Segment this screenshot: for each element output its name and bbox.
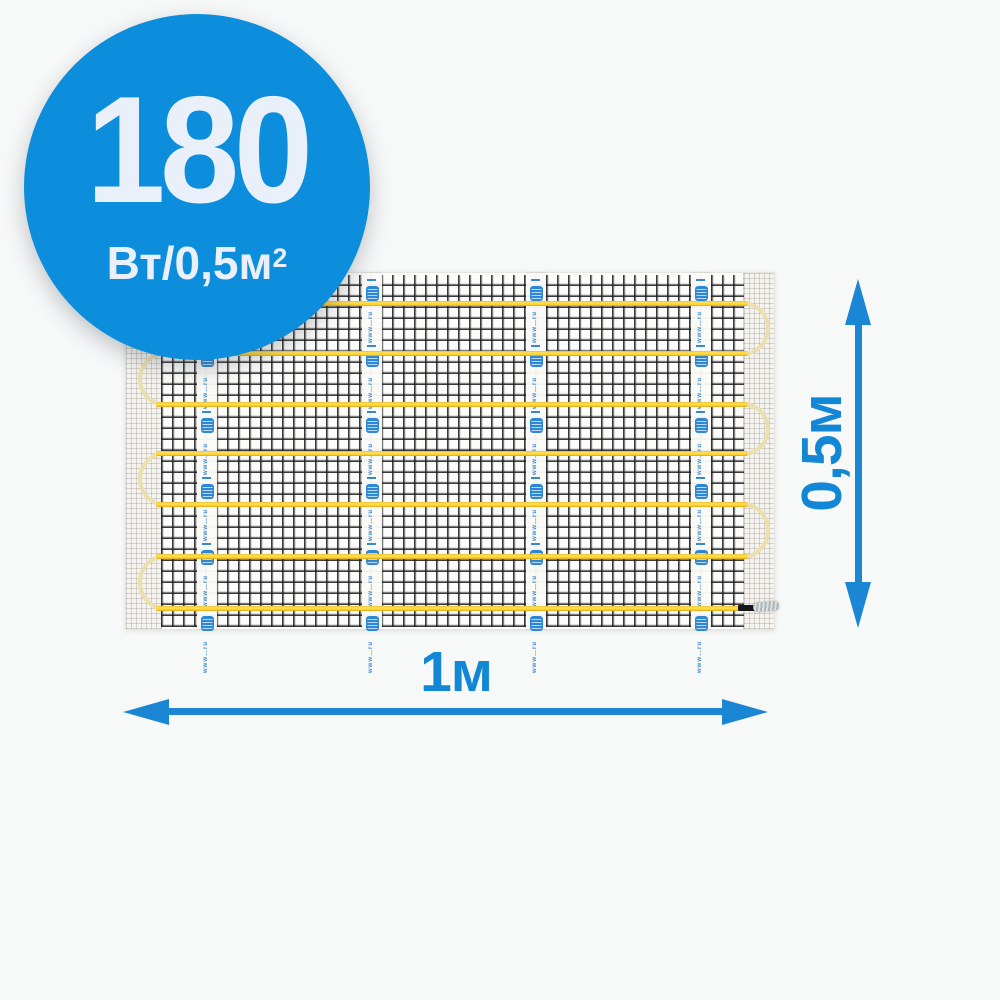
- tape-dash-mark: [531, 279, 540, 281]
- tape-stamp-text: www…ru: [368, 437, 374, 475]
- tape-dash-mark: [202, 543, 211, 545]
- arrow-right-icon: [722, 699, 768, 725]
- width-arrow-shaft: [162, 708, 732, 715]
- tape-dash-mark: [531, 543, 540, 545]
- heating-cable-run: [156, 502, 748, 507]
- arrow-down-icon: [845, 582, 871, 628]
- tape-brand-logo-icon: [201, 484, 214, 499]
- tape-stamp-text: www…ru: [697, 437, 703, 475]
- tape-dash-mark: [367, 543, 376, 545]
- tape-stamp-text: www…ru: [203, 569, 209, 607]
- tape-stamp-text: www…ru: [368, 635, 374, 673]
- tape-stamp-text: www…ru: [368, 569, 374, 607]
- tape-stamp-text: www…ru: [532, 569, 538, 607]
- tape-brand-logo-icon: [695, 616, 708, 631]
- tape-dash-mark: [367, 411, 376, 413]
- tape-stamp-text: www…ru: [203, 503, 209, 541]
- tape-brand-logo-icon: [695, 484, 708, 499]
- tape-stamp-text: www…ru: [368, 503, 374, 541]
- tape-brand-logo-icon: [366, 616, 379, 631]
- tape-stamp-text: www…ru: [203, 635, 209, 673]
- tape-brand-logo-icon: [366, 484, 379, 499]
- tape-brand-logo-icon: [530, 418, 543, 433]
- power-unit-superscript: 2: [273, 243, 288, 273]
- tape-dash-mark: [696, 477, 705, 479]
- tape-dash-mark: [531, 345, 540, 347]
- tape-dash-mark: [202, 477, 211, 479]
- tape-stamp-text: www…ru: [697, 305, 703, 343]
- tape-stamp-text: www…ru: [532, 635, 538, 673]
- tape-dash-mark: [696, 345, 705, 347]
- tape-brand-logo-icon: [366, 286, 379, 301]
- product-image-stage: www…ruwww…ruwww…ruwww…ruwww…ruwww…ruwww……: [0, 0, 1000, 1000]
- tape-brand-logo-icon: [530, 286, 543, 301]
- cable-end-sleeve: [753, 601, 780, 612]
- heating-cable-run: [156, 606, 740, 611]
- heating-cable-run: [156, 554, 748, 559]
- tape-stamp-text: www…ru: [697, 503, 703, 541]
- power-unit: Вт/0,5м2: [107, 236, 288, 290]
- tape-brand-logo-icon: [201, 616, 214, 631]
- tape-dash-mark: [367, 279, 376, 281]
- tape-dash-mark: [531, 477, 540, 479]
- heating-cable-run: [156, 402, 748, 407]
- tape-stamp-text: www…ru: [532, 437, 538, 475]
- height-arrow-shaft: [855, 318, 862, 590]
- tape-dash-mark: [367, 345, 376, 347]
- heating-cable-run: [156, 451, 748, 456]
- tape-brand-logo-icon: [530, 484, 543, 499]
- power-badge: 180 Вт/0,5м2: [24, 14, 370, 360]
- tape-dash-mark: [696, 411, 705, 413]
- height-dimension-label: 0,5м: [792, 373, 852, 533]
- tape-dash-mark: [202, 411, 211, 413]
- tape-brand-logo-icon: [695, 418, 708, 433]
- tape-dash-mark: [367, 477, 376, 479]
- tape-stamp-text: www…ru: [697, 569, 703, 607]
- tape-brand-logo-icon: [366, 418, 379, 433]
- width-dimension-label: 1м: [386, 642, 526, 702]
- tape-stamp-text: www…ru: [532, 503, 538, 541]
- tape-dash-mark: [696, 543, 705, 545]
- tape-stamp-text: www…ru: [697, 635, 703, 673]
- tape-stamp-text: www…ru: [203, 437, 209, 475]
- tape-dash-mark: [696, 279, 705, 281]
- tape-dash-mark: [531, 411, 540, 413]
- power-value: 180: [86, 84, 307, 218]
- tape-stamp-text: www…ru: [532, 305, 538, 343]
- tape-brand-logo-icon: [530, 616, 543, 631]
- tape-brand-logo-icon: [201, 418, 214, 433]
- tape-stamp-text: www…ru: [368, 305, 374, 343]
- tape-brand-logo-icon: [695, 286, 708, 301]
